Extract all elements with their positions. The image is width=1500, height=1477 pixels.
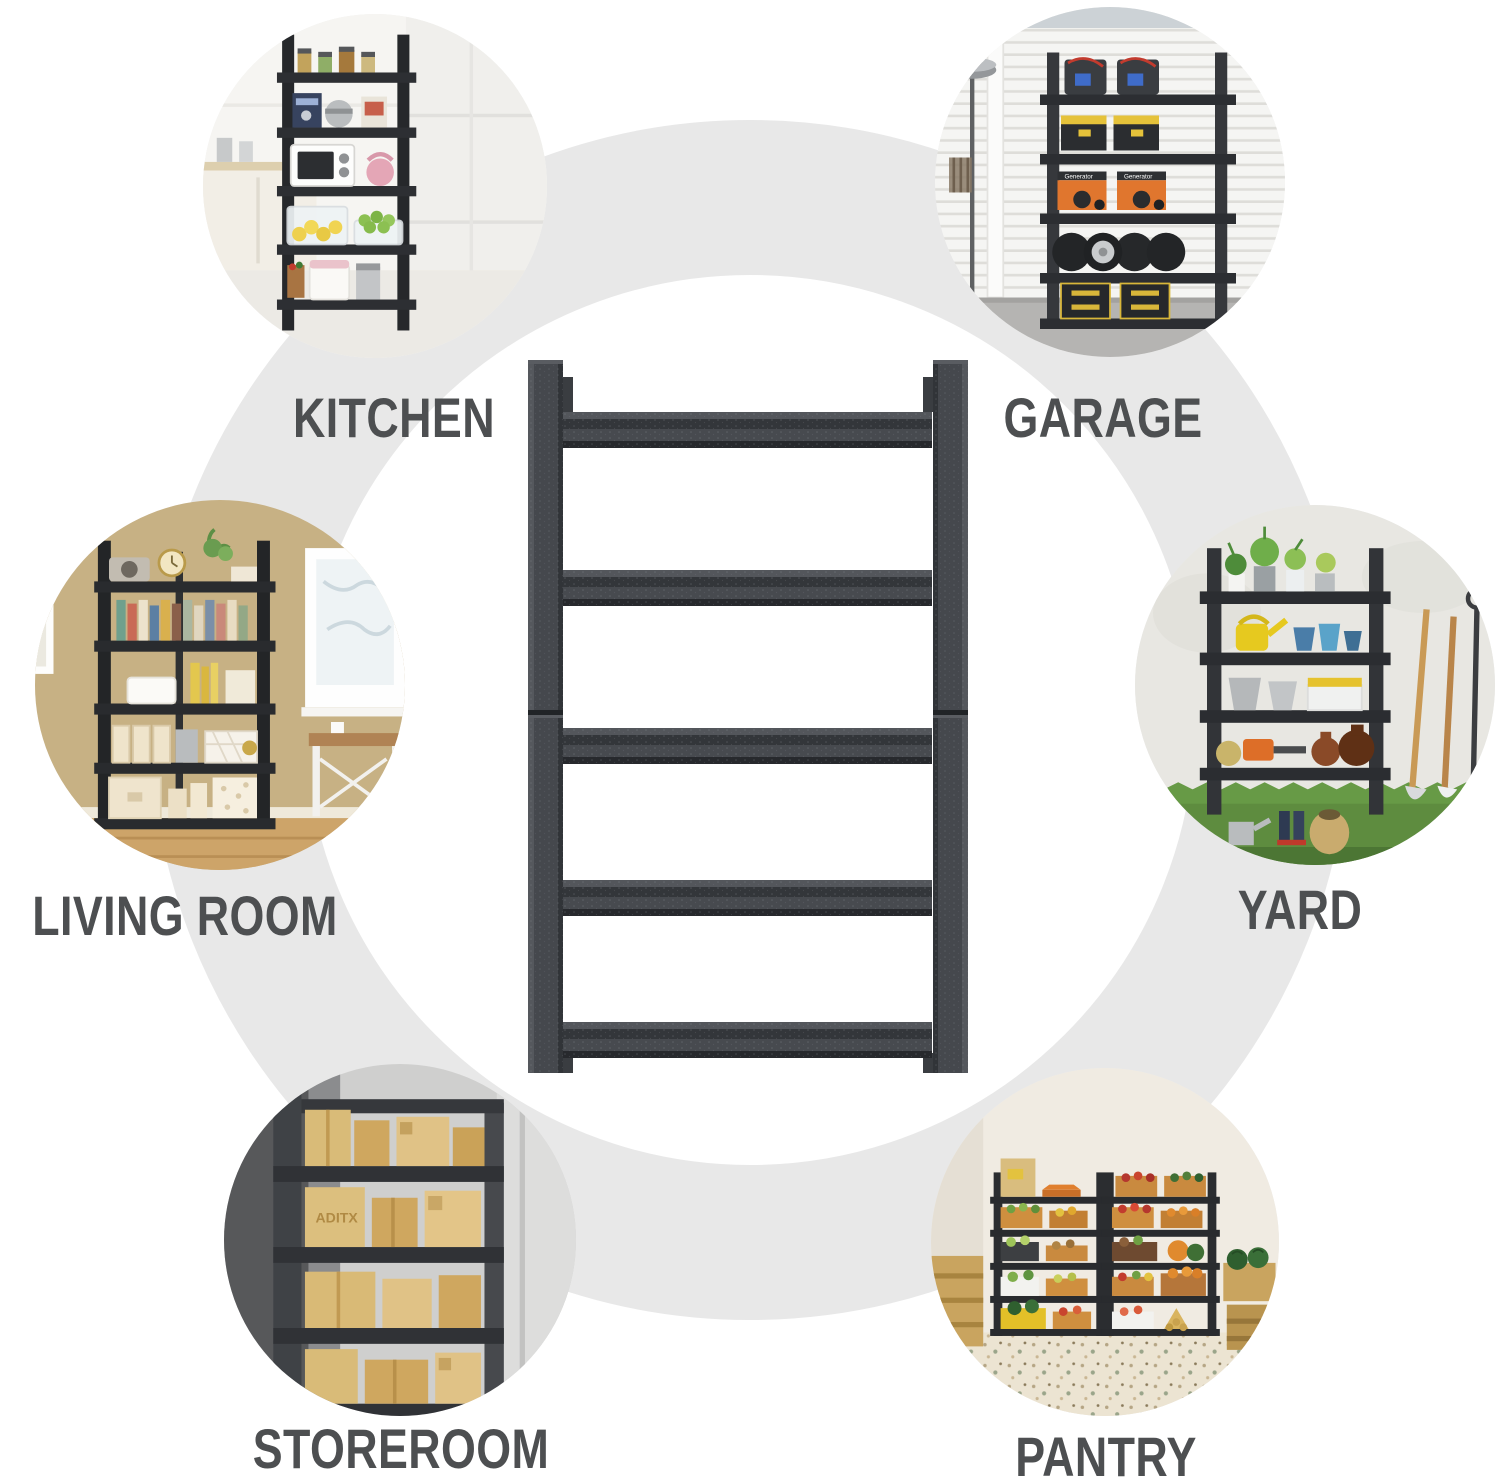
file-boxes-icon — [113, 726, 257, 763]
generator-label: Generator — [1065, 174, 1093, 181]
generator-label: Generator — [1124, 174, 1152, 181]
use-case-label-living-room: LIVING ROOM — [32, 888, 338, 944]
kettle-icon — [366, 154, 394, 186]
product-use-case-infographic: Generator Generator — [0, 0, 1500, 1477]
shelf-beams — [563, 412, 932, 1058]
living-room-scene-illustration — [35, 500, 405, 870]
use-case-photo-kitchen — [203, 14, 547, 358]
product-rack-side-view — [520, 355, 976, 1080]
right-post — [923, 360, 968, 1073]
pantry-scene-illustration — [931, 1068, 1279, 1416]
left-post — [528, 360, 573, 1073]
use-case-label-storeroom: STOREROOM — [253, 1421, 549, 1477]
microwave-icon — [291, 145, 355, 186]
use-case-label-garage: GARAGE — [1003, 390, 1202, 446]
use-case-label-kitchen: KITCHEN — [293, 390, 495, 446]
use-case-label-yard: YARD — [1238, 882, 1362, 938]
use-case-photo-yard — [1135, 505, 1495, 865]
storage-bins-icon — [287, 260, 380, 300]
garage-scene-illustration: Generator Generator — [935, 7, 1285, 357]
use-case-label-pantry: PANTRY — [1015, 1429, 1197, 1477]
kitchen-scene-illustration — [203, 14, 547, 358]
yard-scene-illustration — [1135, 505, 1495, 865]
use-case-photo-storeroom: ADITX — [224, 1064, 576, 1416]
storeroom-scene-illustration: ADITX — [224, 1064, 576, 1416]
use-case-photo-pantry — [931, 1068, 1279, 1416]
use-case-photo-living-room — [35, 500, 405, 870]
rack-frame-illustration — [520, 355, 976, 1080]
box-brand-label: ADITX — [316, 1209, 359, 1225]
use-case-photo-garage: Generator Generator — [935, 7, 1285, 357]
